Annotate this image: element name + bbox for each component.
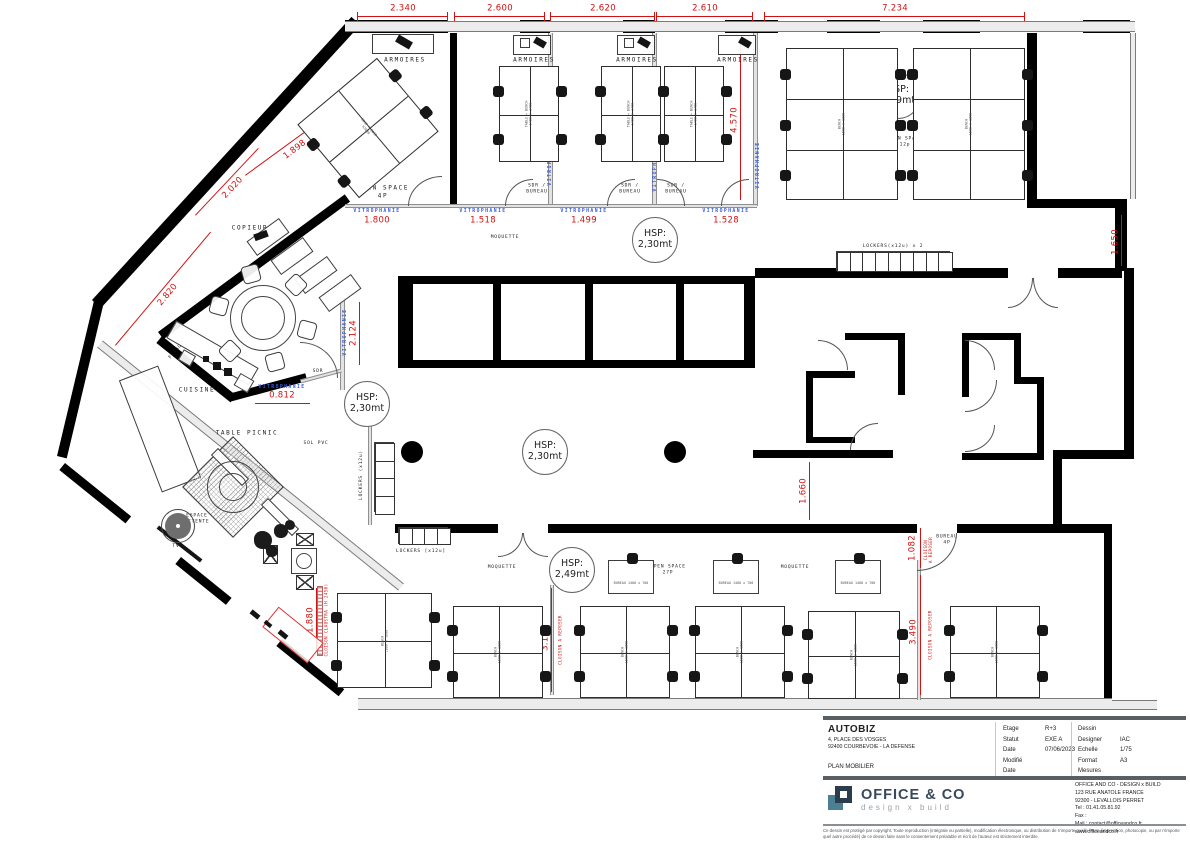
furniture-item xyxy=(624,38,634,48)
office-chair xyxy=(782,625,793,636)
desk-bench-cluster: TABLE + BENCH 1400 x 1400 xyxy=(664,66,724,162)
field-right-row: Mesures xyxy=(1078,766,1186,777)
office-chair xyxy=(1037,671,1048,682)
window-wall xyxy=(1130,33,1136,199)
dimension-label: 1.650 xyxy=(1111,229,1122,255)
office-chair xyxy=(331,660,342,671)
vitrophanie-label: VITROPHANIE xyxy=(756,141,762,188)
wall xyxy=(962,453,1042,460)
office-chair xyxy=(732,553,743,564)
dimension-label: 2.600 xyxy=(487,4,513,15)
office-chair xyxy=(1022,170,1033,181)
door-swing-arc xyxy=(850,423,878,450)
locker-bank xyxy=(374,442,394,512)
wall xyxy=(962,333,1020,340)
dimension-label: 1.528 xyxy=(713,216,739,227)
office-chair xyxy=(595,134,606,145)
office-chair xyxy=(493,86,504,97)
dimension-label: 1.800 xyxy=(364,216,390,227)
window-wall xyxy=(358,698,1112,710)
room-label: ARMOIRES xyxy=(513,56,555,64)
desk-bench-cluster: BENCH 1600 x 1600 xyxy=(297,58,438,198)
furniture-circle xyxy=(224,368,232,376)
door-swing-arc xyxy=(607,179,635,206)
dimension-line xyxy=(447,12,448,21)
office-chair xyxy=(418,104,433,119)
vitrophanie-label: VITROPHANIE xyxy=(353,209,400,215)
core-shaft-panel xyxy=(684,284,744,360)
vitrophanie-label: VITROPHANIE xyxy=(343,308,349,355)
furniture-item xyxy=(119,365,201,492)
dimension-line xyxy=(455,16,545,17)
title-block-rule-top xyxy=(823,716,1186,720)
company-contact-line: 123 RUE ANATOLE FRANCE xyxy=(1075,790,1161,798)
vitrophanie-label: VITROPHANIE xyxy=(702,209,749,215)
locker-bank xyxy=(836,251,950,271)
structural-column xyxy=(401,441,423,463)
office-chair xyxy=(1037,625,1048,636)
title-block-rule-bottom xyxy=(823,824,1186,826)
vitrophanie-label: VITROPHANIE xyxy=(459,209,506,215)
room-label: LOCKERS (x12u) xyxy=(359,450,365,500)
room-label: TABLE PICNIC xyxy=(216,429,279,437)
office-chair xyxy=(802,629,813,640)
office-chair xyxy=(897,629,908,640)
office-chair xyxy=(944,625,955,636)
lounge-chair xyxy=(296,533,314,546)
title-block-divider xyxy=(995,722,996,778)
office-chair xyxy=(802,673,813,684)
office-chair xyxy=(1022,69,1033,80)
company-contact-line: Tel : 01.41.05.81.92 xyxy=(1075,805,1161,813)
client-address-2: 92400 COURBEVOIE - LA DEFENSE xyxy=(828,744,993,750)
wall xyxy=(59,463,131,523)
office-chair xyxy=(627,553,638,564)
wall xyxy=(1058,450,1134,459)
dimension-line xyxy=(544,12,545,21)
office-chair xyxy=(574,625,585,636)
office-chair xyxy=(944,671,955,682)
room-label: ARMOIRES xyxy=(616,56,658,64)
dimension-label: 2.124 xyxy=(349,320,360,346)
document-title: PLAN MOBILIER xyxy=(828,764,993,770)
dimension-label: 2.340 xyxy=(390,4,416,15)
dimension-line xyxy=(656,12,657,21)
wall xyxy=(57,296,105,458)
office-chair xyxy=(907,69,918,80)
desk-bench-cluster: BENCH 1600 x 1600 xyxy=(950,606,1040,698)
ceiling-height-badge: HSP: 2,30mt xyxy=(522,429,568,475)
structural-column xyxy=(664,441,686,463)
door-swing-arc xyxy=(965,425,995,452)
dimension-label: 1.499 xyxy=(571,216,597,227)
field-right-row: FormatA3 xyxy=(1078,756,1186,767)
room-label: MOQUETTE xyxy=(488,565,517,571)
room-label: MOQUETTE xyxy=(491,235,520,241)
meeting-chair xyxy=(296,319,318,341)
single-desk: BUREAU 1400 x 700 xyxy=(608,560,654,594)
office-chair xyxy=(447,671,458,682)
office-chair xyxy=(556,134,567,145)
title-block: AUTOBIZ 4, PLACE DES VOSGES 92400 COURBE… xyxy=(823,716,1186,838)
company-contact-line: Fax : xyxy=(1075,813,1161,821)
office-chair xyxy=(336,173,351,188)
wall xyxy=(450,33,457,206)
office-chair xyxy=(897,673,908,684)
dimension-label: 2.820 xyxy=(156,282,181,309)
office-chair xyxy=(907,120,918,131)
door-swing-arc xyxy=(408,176,442,206)
door-swing-arc xyxy=(1008,278,1033,308)
dimension-line xyxy=(358,16,448,17)
wall xyxy=(898,333,905,395)
ceiling-height-badge: HSP: 2,30mt xyxy=(632,217,678,263)
room-label: ARMOIRES xyxy=(384,56,426,64)
office-chair xyxy=(721,134,732,145)
office-chair xyxy=(556,86,567,97)
room-label: LOCKERS(x12u) x 2 xyxy=(863,244,924,250)
single-desk: BUREAU 1400 x 700 xyxy=(835,560,881,594)
door-swing-arc xyxy=(965,380,997,412)
dimension-label: CLOISON A REPOSER xyxy=(557,615,562,665)
dimension-label: 2.620 xyxy=(590,4,616,15)
office-chair xyxy=(689,625,700,636)
office-chair xyxy=(667,671,678,682)
office-chair xyxy=(895,69,906,80)
title-block-rule-mid xyxy=(823,776,1186,780)
core-shaft-panel xyxy=(593,284,676,360)
desk-bench-cluster: BENCH 1600 x 1600 xyxy=(580,606,670,698)
office-chair xyxy=(895,120,906,131)
office-chair xyxy=(907,170,918,181)
room-label: ARMOIRES xyxy=(717,56,759,64)
wall xyxy=(1124,268,1134,458)
field-right-row: Dessin xyxy=(1078,724,1186,735)
client-name: AUTOBIZ xyxy=(828,724,993,735)
pouf-center xyxy=(176,524,180,528)
room-label: OPEN SPACE 27P xyxy=(650,564,686,575)
office-chair xyxy=(780,170,791,181)
wall xyxy=(957,524,1112,533)
office-chair xyxy=(540,625,551,636)
meeting-table-inner xyxy=(241,296,285,340)
dimension-line xyxy=(654,12,655,21)
wall xyxy=(1053,450,1062,532)
wall xyxy=(806,371,813,443)
furniture-circle xyxy=(219,473,247,501)
door-swing-arc xyxy=(818,340,848,370)
office-chair xyxy=(854,553,865,564)
door-swing-arc xyxy=(721,179,749,206)
door-swing-arc xyxy=(965,340,995,370)
dimension-line xyxy=(255,403,310,404)
dimension-line xyxy=(551,16,655,17)
dimension-label: 7.234 xyxy=(882,4,908,15)
furniture-circle xyxy=(213,362,221,370)
wall xyxy=(1027,199,1122,208)
vitrophanie-label: VITROPHANIE xyxy=(258,385,305,391)
office-chair xyxy=(595,86,606,97)
room-label: CUISINE xyxy=(179,386,216,394)
office-chair xyxy=(658,86,669,97)
dimension-label: 1.660 xyxy=(799,478,810,504)
dimension-line xyxy=(752,12,753,21)
office-chair xyxy=(895,170,906,181)
desk-bench-cluster: BENCH 1600 x 1600 xyxy=(808,611,900,699)
dimension-label: 4.570 xyxy=(730,107,741,133)
vitrophanie-label: VITROPHANIE xyxy=(560,209,607,215)
company-contact-line: 92300 - LEVALLOIS PERRET xyxy=(1075,798,1161,806)
project-info: AUTOBIZ 4, PLACE DES VOSGES 92400 COURBE… xyxy=(828,724,993,770)
dimension-label: CLOISON A REPOSER xyxy=(927,610,932,660)
fields-right: DessinDesignerIACEchelle1/75FormatA3Mesu… xyxy=(1078,724,1186,777)
meeting-chair xyxy=(264,351,286,373)
office-chair xyxy=(1022,120,1033,131)
office-chair xyxy=(305,136,320,151)
ceiling-height-badge: HSP: 2,30mt xyxy=(344,381,390,427)
desk-bench-cluster: TABLE + BENCH 1400 x 1400 xyxy=(499,66,559,162)
desk-bench-cluster: TABLE + BENCH 1400 x 1400 xyxy=(601,66,661,162)
wall xyxy=(806,371,855,378)
dimension-line xyxy=(920,575,921,695)
locker-bank xyxy=(398,527,448,544)
core-shaft-panel xyxy=(413,284,493,360)
window-wall xyxy=(345,21,1135,32)
dimension-label: CLOISON CLAUSTRA (H 2450) xyxy=(323,583,328,656)
dimension-label: 3.490 xyxy=(909,619,920,645)
door-swing-arc xyxy=(300,342,338,378)
dimension-line xyxy=(454,12,455,21)
wall xyxy=(548,524,917,533)
office-chair xyxy=(782,671,793,682)
core-shaft-panel xyxy=(501,284,585,360)
dimension-label: 2.610 xyxy=(692,4,718,15)
logo-tagline: design x build xyxy=(861,803,965,812)
logo-name: OFFICE & CO xyxy=(861,787,965,803)
door-swing-arc xyxy=(505,179,533,206)
office-chair xyxy=(689,671,700,682)
wall xyxy=(845,333,905,340)
office-chair xyxy=(429,660,440,671)
dimension-line xyxy=(657,16,753,17)
room-label: LOCKERS [x12u] xyxy=(396,549,446,555)
office-chair xyxy=(780,69,791,80)
door-swing-arc xyxy=(917,533,957,571)
office-chair xyxy=(387,68,402,83)
furniture-item xyxy=(520,38,530,48)
dimension-line xyxy=(765,16,1025,17)
ceiling-height-badge: HSP: 2,49mt xyxy=(549,547,595,593)
office-chair xyxy=(721,86,732,97)
dimension-line xyxy=(764,12,765,21)
meeting-chair xyxy=(208,295,230,317)
office-chair xyxy=(574,671,585,682)
plant xyxy=(285,520,295,530)
floor-plan: 2.3402.6002.6202.6107.2342.0201.8982.820… xyxy=(0,0,1190,841)
window-wall xyxy=(1112,700,1157,710)
dimension-line xyxy=(1024,12,1025,21)
title-block-divider xyxy=(1071,722,1072,778)
single-desk: BUREAU 1400 x 700 xyxy=(713,560,759,594)
dimension-line xyxy=(357,12,358,21)
field-right-row: DesignerIAC xyxy=(1078,735,1186,746)
office-chair xyxy=(429,612,440,623)
wall xyxy=(806,437,855,443)
desk-bench-cluster: BENCH 1600 x 1600 xyxy=(453,606,543,698)
dimension-label: 0.812 xyxy=(269,391,295,402)
room-label: SOL PVC xyxy=(304,441,329,447)
desk-bench-cluster: BENCH 1600 x 1600 xyxy=(695,606,785,698)
wall xyxy=(1037,377,1044,460)
dimension-label: 2.020 xyxy=(220,175,245,201)
client-address-1: 4, PLACE DES VOSGES xyxy=(828,737,993,743)
office-chair xyxy=(667,625,678,636)
room-label: MOQUETTE xyxy=(781,565,810,571)
desk-bench-cluster: BENCH 1600 x 1600 xyxy=(786,48,898,200)
wall xyxy=(175,557,231,605)
wall xyxy=(1104,524,1112,700)
office-chair xyxy=(540,671,551,682)
office-chair xyxy=(447,625,458,636)
company-contact-line: OFFICE AND CO - DESIGN x BUILD xyxy=(1075,782,1161,790)
company-logo: OFFICE & CO design x build xyxy=(828,786,965,813)
door-swing-arc xyxy=(1033,278,1058,308)
glass-partition xyxy=(345,204,757,208)
door-swing-arc xyxy=(498,533,523,557)
wall xyxy=(1058,268,1122,278)
office-chair xyxy=(658,134,669,145)
dimension-line xyxy=(550,12,551,21)
furniture-circle xyxy=(203,356,209,362)
office-and-co-logo-icon xyxy=(828,786,854,813)
lounge-chair xyxy=(296,575,314,590)
dimension-label: 1.518 xyxy=(470,216,496,227)
furniture-circle xyxy=(296,553,312,569)
plant xyxy=(266,545,278,557)
copyright-notice: Ce dessin est protégé par copyright. Tou… xyxy=(823,828,1186,841)
desk-bench-cluster: BENCH 1600 x 1600 xyxy=(913,48,1025,200)
office-chair xyxy=(780,120,791,131)
office-chair xyxy=(331,612,342,623)
equipment-item xyxy=(250,609,261,619)
wall xyxy=(753,450,893,458)
office-chair xyxy=(493,134,504,145)
dimension-label: 1.898 xyxy=(281,138,308,162)
desk-bench-cluster: BENCH 1600 x 1600 xyxy=(337,593,432,688)
field-right-row: Echelle1/75 xyxy=(1078,745,1186,756)
door-swing-arc xyxy=(523,533,548,557)
